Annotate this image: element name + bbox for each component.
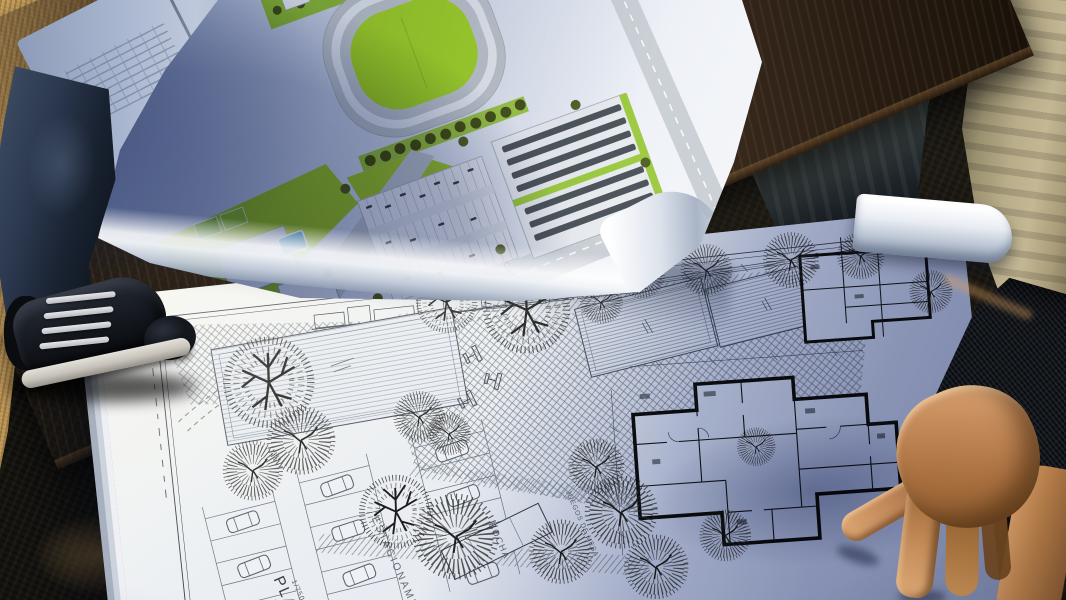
black-sneaker xyxy=(4,268,214,418)
photo-blueprints-on-table: ESTACIONAMIENTO BOCHA JUEGOS DE MESA xyxy=(0,0,1066,600)
